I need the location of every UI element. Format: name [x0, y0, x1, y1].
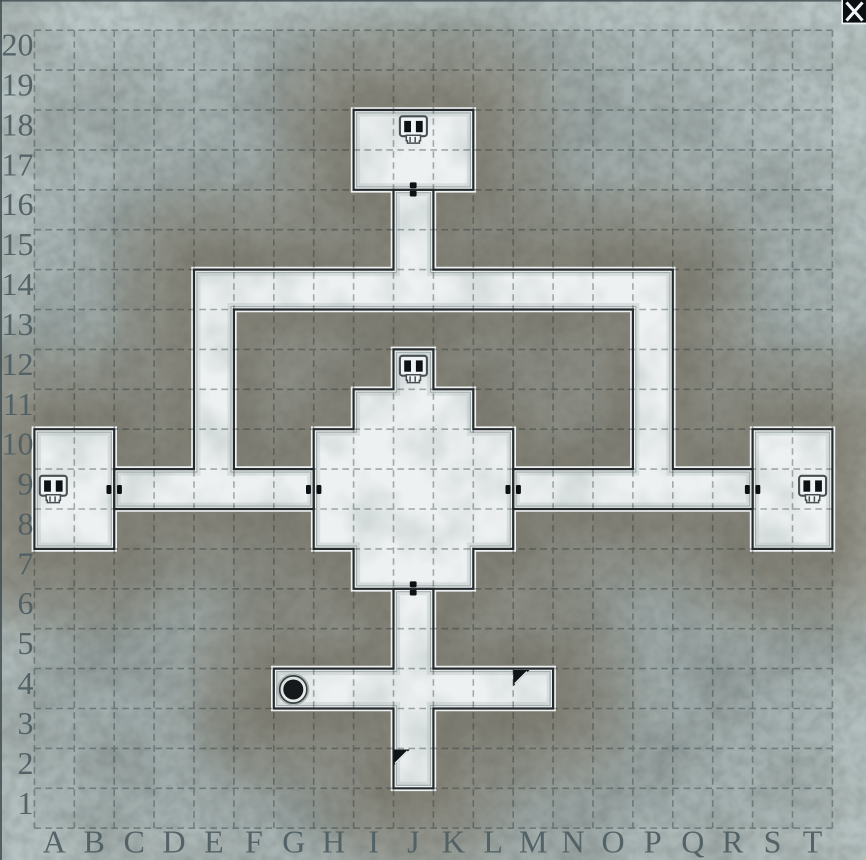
svg-text:M: M	[519, 824, 547, 860]
svg-text:6: 6	[18, 585, 34, 621]
svg-text:2: 2	[18, 745, 34, 781]
svg-text:B: B	[84, 824, 105, 860]
svg-text:8: 8	[18, 506, 34, 542]
svg-text:A: A	[43, 824, 66, 860]
svg-text:12: 12	[2, 346, 34, 382]
svg-text:J: J	[407, 824, 419, 860]
svg-text:4: 4	[18, 665, 34, 701]
svg-text:G: G	[282, 824, 305, 860]
svg-text:H: H	[322, 824, 345, 860]
svg-text:F: F	[245, 824, 263, 860]
svg-text:17: 17	[2, 146, 34, 182]
svg-text:15: 15	[2, 226, 34, 262]
svg-text:P: P	[644, 824, 662, 860]
svg-text:T: T	[803, 824, 823, 860]
svg-text:1: 1	[18, 785, 34, 821]
svg-text:9: 9	[18, 466, 34, 502]
svg-text:7: 7	[18, 545, 34, 581]
svg-text:18: 18	[2, 106, 34, 142]
svg-text:L: L	[483, 824, 503, 860]
svg-text:14: 14	[2, 266, 34, 302]
svg-text:R: R	[722, 824, 744, 860]
svg-text:20: 20	[2, 27, 34, 63]
svg-text:13: 13	[2, 306, 34, 342]
svg-text:19: 19	[2, 67, 34, 103]
svg-text:C: C	[124, 824, 145, 860]
svg-text:11: 11	[3, 386, 34, 422]
svg-text:I: I	[368, 824, 379, 860]
svg-text:3: 3	[18, 705, 34, 741]
svg-text:K: K	[442, 824, 465, 860]
svg-text:16: 16	[2, 186, 34, 222]
svg-text:O: O	[601, 824, 624, 860]
svg-text:5: 5	[18, 625, 34, 661]
svg-text:E: E	[204, 824, 224, 860]
svg-text:S: S	[764, 824, 782, 860]
svg-text:Q: Q	[681, 824, 704, 860]
svg-text:10: 10	[2, 426, 34, 462]
svg-text:N: N	[561, 824, 584, 860]
svg-text:D: D	[163, 824, 186, 860]
